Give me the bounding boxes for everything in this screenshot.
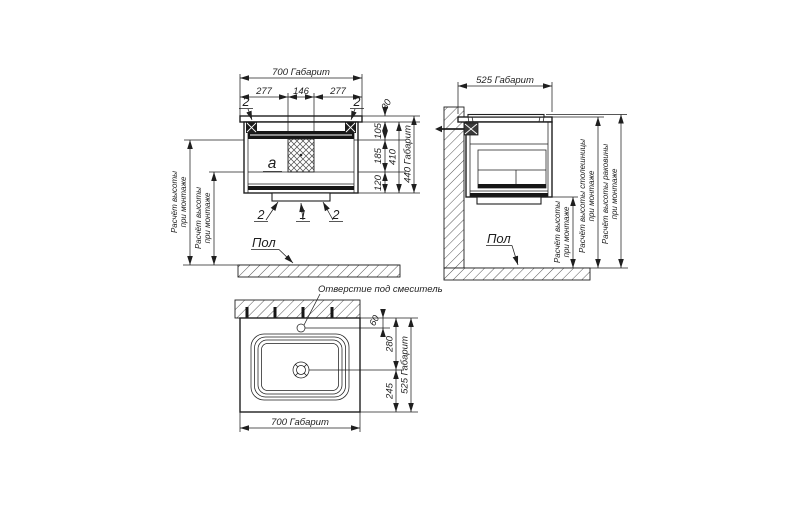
front-floor: Пол [183, 235, 400, 277]
front-dim-30: 30 [379, 97, 394, 112]
front-cabinet-body [240, 116, 362, 201]
faucet-hole-label: Отверстие под смеситель [318, 284, 443, 295]
side-dim-525: 525 Габарит [476, 75, 534, 86]
front-bracket-right [345, 122, 356, 133]
top-dim-245: 245 [385, 382, 396, 400]
side-anchor-arrow [435, 126, 442, 132]
side-plinth [477, 197, 541, 204]
side-dim-mount-heights: Расчёт высоты при монтаже Расчёт высоты … [546, 115, 627, 269]
front-mount-dim-inner-line2: при монтаже [203, 192, 212, 243]
front-floor-label: Пол [252, 235, 276, 250]
top-view: Отверстие под смеситель 60 280 245 525 Г… [235, 284, 443, 432]
front-bracket-left [246, 122, 257, 133]
side-mount-dim-line1: Расчёт высоты [553, 201, 562, 263]
side-floor-label: Пол [487, 231, 511, 246]
front-countertop-rim [240, 116, 362, 122]
front-mount-dim-inner-line1: Расчёт высоты [194, 187, 203, 249]
front-floor-hatch [238, 265, 400, 277]
side-basin-dim-line1: Расчёт высоты раковины [601, 144, 610, 244]
front-plinth [272, 193, 330, 201]
front-dim-277-right: 277 [329, 86, 347, 97]
top-wall-hatch [235, 300, 360, 318]
top-dim-280: 280 [385, 335, 396, 353]
front-callout-2-bottom-left: 2 [257, 208, 265, 222]
front-dim-410: 410 [388, 148, 399, 165]
side-countertop-dim-line2: при монтаже [587, 170, 596, 221]
vanity-drawing-svg: a Пол 700 Габарит 277 146 277 [0, 0, 800, 512]
front-dim-mount-heights: Расчёт высоты при монтаже Расчёт высоты … [170, 140, 244, 265]
front-section-label: a [268, 155, 277, 172]
front-callout-2-top-right: 2 [353, 95, 361, 109]
front-callout-2-top-left: 2 [242, 95, 250, 109]
front-dim-440: 440 Габарит [403, 125, 414, 183]
front-mount-dim-outer-line1: Расчёт высоты [170, 171, 179, 233]
front-view: a Пол 700 Габарит 277 146 277 [170, 67, 420, 277]
front-drain-dot [300, 154, 303, 157]
side-basin-rim [468, 115, 544, 118]
front-dim-277-left: 277 [255, 86, 273, 97]
technical-drawing-sheet: a Пол 700 Габарит 277 146 277 [0, 0, 800, 512]
front-dim-heights: 30 105 185 120 410 440 Габарит [354, 97, 420, 193]
side-wall-hatch [444, 107, 464, 268]
side-basin-dim-line2: при монтаже [610, 168, 619, 219]
front-dim-185: 185 [373, 147, 384, 164]
side-dim-depth: 525 Габарит [458, 75, 552, 114]
front-dim-700: 700 Габарит [272, 67, 330, 78]
side-mount-dim-line2: при монтаже [562, 206, 571, 257]
front-dim-105: 105 [373, 122, 384, 139]
side-countertop-dim-line1: Расчёт высоты столешницы [578, 139, 587, 253]
side-floor-hatch [444, 268, 590, 280]
front-dim-146: 146 [293, 86, 310, 97]
side-view: Пол 525 Габарит Расчёт высоты при монтаж… [435, 75, 628, 280]
front-mount-dim-outer-line2: при монтаже [179, 176, 188, 227]
front-dim-120: 120 [373, 174, 384, 191]
top-dim-700: 700 Габарит [271, 417, 329, 428]
top-dim-525: 525 Габарит [400, 336, 411, 394]
top-dim-60: 60 [367, 313, 382, 328]
